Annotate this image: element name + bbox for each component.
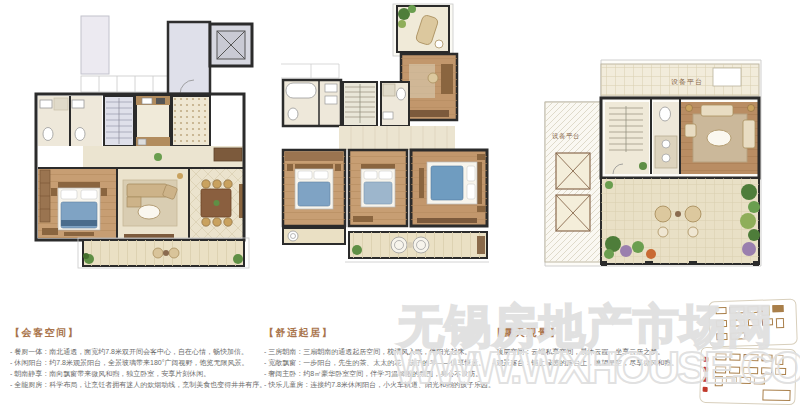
unit-marker-red-icon bbox=[703, 376, 708, 381]
plan3-garden-terrace bbox=[601, 178, 760, 266]
keyplan-card-lower bbox=[699, 347, 796, 405]
mini-floorplan-thumb bbox=[716, 332, 727, 339]
mini-floorplan-thumb bbox=[739, 376, 750, 383]
mini-floorplan-thumb bbox=[715, 353, 726, 360]
plan3-equipment-platform-left: 设备平台 bbox=[545, 102, 601, 262]
plan2-bedroom-1 bbox=[283, 150, 345, 244]
section-heading: 【会客空间】 bbox=[10, 326, 262, 340]
floorplan-lower-level bbox=[28, 6, 260, 274]
mini-floorplan-thumb bbox=[729, 353, 740, 360]
section-heading: 【露天观景】 bbox=[492, 326, 732, 340]
plan2-neighbor-outline bbox=[281, 64, 339, 78]
mini-floorplan-thumb bbox=[775, 367, 786, 374]
mini-floorplan-thumb bbox=[715, 319, 726, 326]
mini-floorplan-grid bbox=[713, 351, 793, 389]
floorplan-roof-level-drawing: 设备平台 设备平台 bbox=[543, 58, 765, 274]
basin bbox=[413, 237, 429, 253]
keyplan-card-upper bbox=[708, 298, 798, 347]
plan1-bedroom bbox=[38, 168, 116, 238]
basin bbox=[391, 237, 407, 253]
mini-floorplan-grid bbox=[713, 303, 793, 342]
plan1-stair-void bbox=[81, 16, 168, 92]
terrace-chair bbox=[655, 206, 671, 222]
mini-floorplan-thumb bbox=[772, 304, 783, 311]
mini-floorplan-thumb bbox=[715, 366, 726, 373]
section-heading: 【舒适起居】 bbox=[264, 326, 492, 340]
plan1-corridor bbox=[83, 146, 244, 168]
desk bbox=[441, 64, 453, 94]
plant-icon bbox=[154, 153, 162, 161]
plant-icon bbox=[639, 162, 647, 170]
plan3-bathroom bbox=[653, 102, 679, 174]
mini-floorplan-thumb bbox=[715, 306, 726, 313]
feature-line: - 三房朝南：三扇朝南的通透起居空间，枕清风入眠，伴阳光起床。 bbox=[264, 346, 492, 357]
unit-marker-column bbox=[703, 354, 709, 394]
mini-floorplan-thumb bbox=[761, 367, 772, 374]
mini-floorplan-thumb bbox=[753, 377, 764, 384]
plan1-kitchen bbox=[136, 96, 170, 146]
mini-floorplan-thumb bbox=[725, 376, 736, 383]
mini-floorplan-thumb bbox=[747, 305, 758, 312]
mini-floorplan-thumb bbox=[761, 305, 769, 315]
bed-blue bbox=[298, 182, 330, 206]
plan2-balcony bbox=[345, 232, 489, 262]
mini-floorplan-thumb bbox=[729, 306, 744, 314]
feature-line: - 顶层空间：云端私享空间，晨沐云霞，坐享云居之梦。 bbox=[492, 346, 732, 357]
mini-floorplan-thumb bbox=[729, 319, 744, 327]
bed-blue bbox=[431, 166, 463, 200]
equipment-platform-label-left: 设备平台 bbox=[552, 132, 580, 140]
plan2-master-bedroom bbox=[411, 150, 487, 226]
mini-floorplan-thumb bbox=[761, 354, 772, 361]
floorplan-roof-level: 设备平台 设备平台 bbox=[543, 58, 765, 274]
unit-marker-red-icon bbox=[703, 356, 708, 361]
sofa bbox=[701, 105, 733, 116]
section-roof-view: 【露天观景】 - 顶层空间：云端私享空间，晨沐云霞，坐享云居之梦。 - 观景露台… bbox=[492, 326, 732, 368]
plan2-roof-terrace bbox=[393, 4, 453, 56]
section-living-space: 【会客空间】 - 餐厨一体：南北通透，面宽约7.8米双开间会客中心，自在心情，畅… bbox=[10, 326, 262, 390]
mini-floorplan-thumb bbox=[747, 318, 758, 325]
bathtub bbox=[286, 83, 316, 98]
plan3-equipment-platform-top: 设备平台 bbox=[601, 64, 759, 96]
plan2-bedroom-2 bbox=[349, 150, 407, 226]
plan3-stair-room bbox=[605, 102, 649, 174]
equipment-platform-label-top: 设备平台 bbox=[671, 78, 703, 86]
feature-line: - 休闲阳台：约7.8米观景阳台，全景玻璃带来180°广阔视野，饱览无限风景。 bbox=[10, 357, 262, 368]
plan1-stairs bbox=[104, 96, 134, 146]
unit-marker-red-icon bbox=[703, 366, 708, 371]
plan3-lounge bbox=[681, 102, 759, 174]
plant-icon bbox=[233, 254, 243, 264]
feature-line: - 观景露台：铺上绿茵的露台上，眺望星空，尽享微风和煦。 bbox=[492, 357, 732, 368]
floorplan-lower-level-drawing bbox=[28, 6, 260, 274]
mini-floorplan-thumb bbox=[714, 376, 722, 386]
feature-line: - 朝南静享：南向飘窗带来微风和煦，独立卧室，安享片刻休闲。 bbox=[10, 368, 262, 379]
floorplan-sheet: 设备平台 设备平台 bbox=[0, 0, 800, 406]
plan1-elevator bbox=[210, 24, 252, 66]
mini-floorplan-thumb bbox=[775, 317, 783, 327]
bed-blue bbox=[364, 182, 392, 204]
plan1-foyer-mosaic bbox=[172, 96, 210, 146]
plan1-living-room bbox=[117, 168, 189, 238]
floorplan-bedroom-level-drawing bbox=[281, 2, 493, 274]
plan2-hall-bath bbox=[381, 82, 409, 126]
feature-line: - 快乐儿童房：连接约7.8米休闲阳台，小火车轨道、阳光和煦的孩子乐园。 bbox=[264, 379, 492, 390]
plan2-corridor bbox=[339, 126, 455, 150]
mini-floorplan-thumb bbox=[730, 332, 745, 340]
plan2-master-bath bbox=[283, 80, 341, 126]
unit-marker-red-icon bbox=[703, 386, 708, 391]
mini-floorplan-thumb bbox=[743, 366, 758, 373]
plan1-balcony bbox=[78, 238, 249, 268]
plan2-stairs bbox=[343, 82, 377, 126]
terrace-chair bbox=[685, 206, 701, 222]
keyplan-legend-box bbox=[762, 389, 790, 401]
plan1-bathrooms bbox=[38, 96, 102, 146]
feature-line: - 全能厨房：科学布局，让烹饪者拥有迷人的炊烟动线，烹制美食也变得井井有序。 bbox=[10, 379, 262, 390]
feature-line: - 奢阔主卧：约8㎡豪华卧室空间，伴学习温馨般的氛围，身心不设防。 bbox=[264, 368, 492, 379]
plan1-entry-hall bbox=[168, 22, 210, 94]
feature-line: - 餐厨一体：南北通透，面宽约7.8米双开间会客中心，自在心情，畅快加倍。 bbox=[10, 346, 262, 357]
floorplan-bedroom-level bbox=[281, 2, 493, 274]
mini-floorplan-thumb bbox=[729, 366, 740, 373]
mini-floorplan-thumb bbox=[775, 354, 783, 364]
sofa bbox=[127, 184, 167, 197]
feature-line: - 宽敞飘窗：一步阳台，先生的茶、太太的花、孩子的琴——俱享惬意。 bbox=[264, 357, 492, 368]
section-comfort-living: 【舒适起居】 - 三房朝南：三扇朝南的通透起居空间，枕清风入眠，伴阳光起床。 -… bbox=[264, 326, 492, 390]
mini-floorplan-thumb bbox=[761, 318, 772, 325]
mini-floorplan-thumb bbox=[743, 353, 758, 360]
plan1-dining-room bbox=[189, 168, 244, 238]
plant-icon bbox=[352, 245, 362, 255]
